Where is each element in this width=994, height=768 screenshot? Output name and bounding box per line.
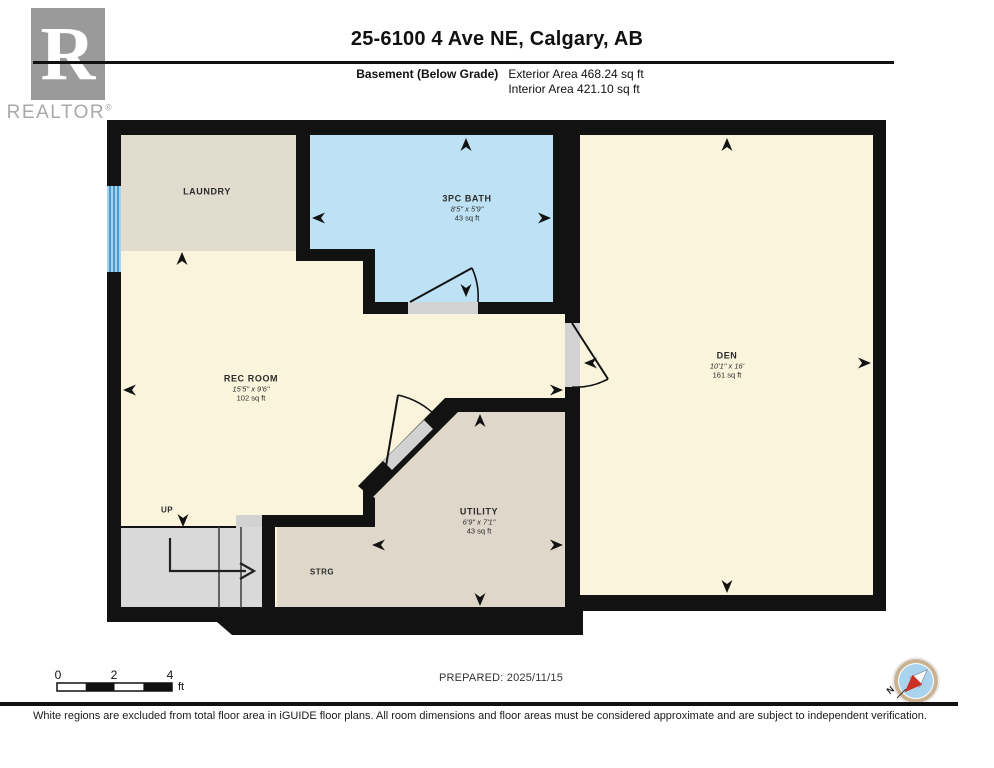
wall-bath-right [553, 120, 580, 314]
footer-disclaimer: White regions are excluded from total fl… [33, 710, 973, 722]
scale-unit-label: ft [178, 681, 184, 693]
title-divider [33, 61, 894, 64]
scale-tick-2: 2 [111, 668, 118, 682]
bath-door-sill [408, 302, 478, 314]
scale-bar-segment [86, 683, 115, 691]
compass [893, 658, 939, 704]
wall-laundry-bath [296, 135, 310, 261]
wall-storage-top [262, 515, 375, 527]
stairs-up-label: UP [161, 506, 173, 515]
wall-stairs-right [262, 515, 275, 610]
registered-mark: ® [105, 103, 113, 113]
window-left [107, 186, 121, 272]
bath-notch-floor [310, 261, 363, 302]
floorplan-svg [0, 0, 994, 768]
wall-top [107, 120, 886, 135]
prepared-date: PREPARED: 2025/11/15 [400, 672, 602, 684]
scale-bar [57, 683, 172, 691]
realtor-logo-letter: R [41, 16, 96, 92]
wall-right [873, 120, 886, 611]
laundry-label: LAUNDRY [183, 187, 231, 198]
scale-tick-0: 0 [55, 668, 62, 682]
wall-den-left-lower [565, 387, 580, 608]
storage-label: STRG [310, 568, 334, 577]
wall-den-bottom [565, 595, 886, 611]
wall-bottom-left [107, 607, 217, 622]
scale-tick-4: 4 [167, 668, 174, 682]
stairs-door-opening [236, 515, 262, 527]
footer-divider [0, 702, 958, 706]
rec-room-label: REC ROOM 15'5" x 9'6" 102 sq ft [224, 374, 278, 403]
wall-utility-top [445, 398, 580, 412]
den-label: DEN 10'1" x 16' 161 sq ft [710, 351, 744, 380]
wall-den-left-upper [565, 314, 580, 323]
scale-bar-segment [143, 683, 172, 691]
realtor-wordmark: REALTOR® [0, 102, 120, 124]
utility-label: UTILITY 6'9" x 7'1" 43 sq ft [460, 507, 498, 536]
floorplan-page: R REALTOR® 25-6100 4 Ave NE, Calgary, AB… [0, 0, 994, 768]
wall-bottom-step [217, 607, 583, 635]
realtor-logo: R [31, 8, 105, 100]
bath-label: 3PC BATH 8'5" x 5'9" 43 sq ft [442, 194, 491, 223]
floor-fills [121, 135, 873, 608]
